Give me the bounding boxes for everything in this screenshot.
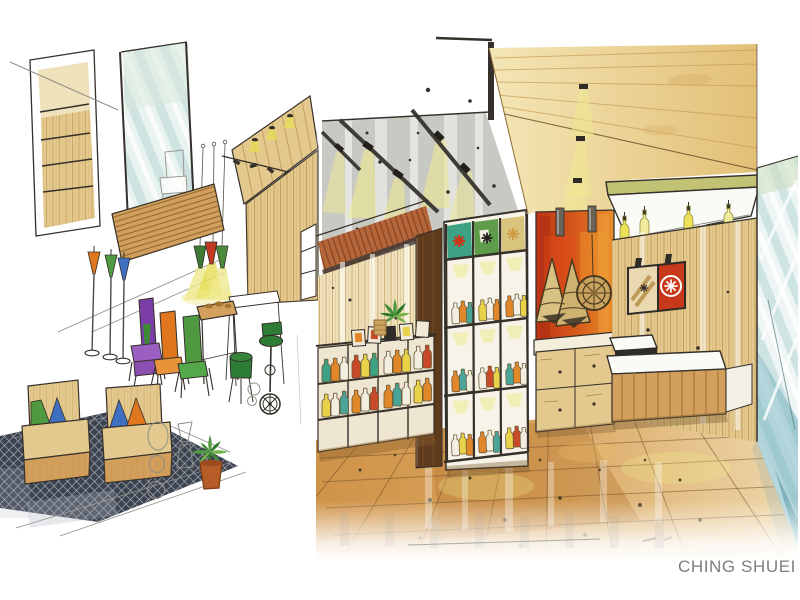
asterisk-glyph-black	[482, 233, 493, 244]
scanned-sketch-page: CHING SHUEI	[0, 0, 800, 600]
counter-side-panel	[726, 364, 752, 412]
woven-basket	[374, 320, 386, 335]
sketch-canvas: CHING SHUEI	[0, 0, 800, 600]
asterisk-glyph-white	[664, 279, 677, 292]
wheel-base	[260, 394, 280, 414]
tall-display-shelf	[444, 210, 528, 470]
artist-signature-text: CHING SHUEI	[678, 557, 796, 576]
orange-feature-wall	[536, 206, 614, 346]
bottom-fade	[310, 500, 800, 562]
wall-niche-shelf	[301, 224, 316, 300]
drawer-cabinet	[534, 332, 616, 432]
